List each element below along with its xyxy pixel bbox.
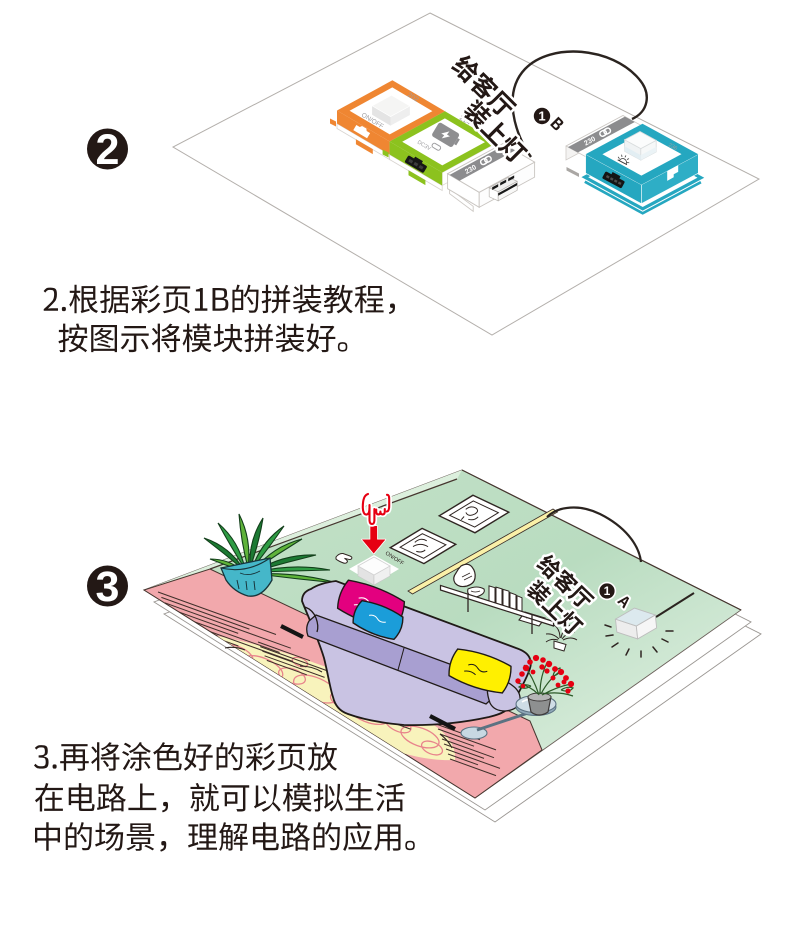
svg-text:3: 3	[96, 563, 120, 611]
svg-text:1: 1	[538, 109, 545, 124]
svg-text:2: 2	[96, 126, 120, 174]
svg-text:1: 1	[604, 584, 611, 598]
